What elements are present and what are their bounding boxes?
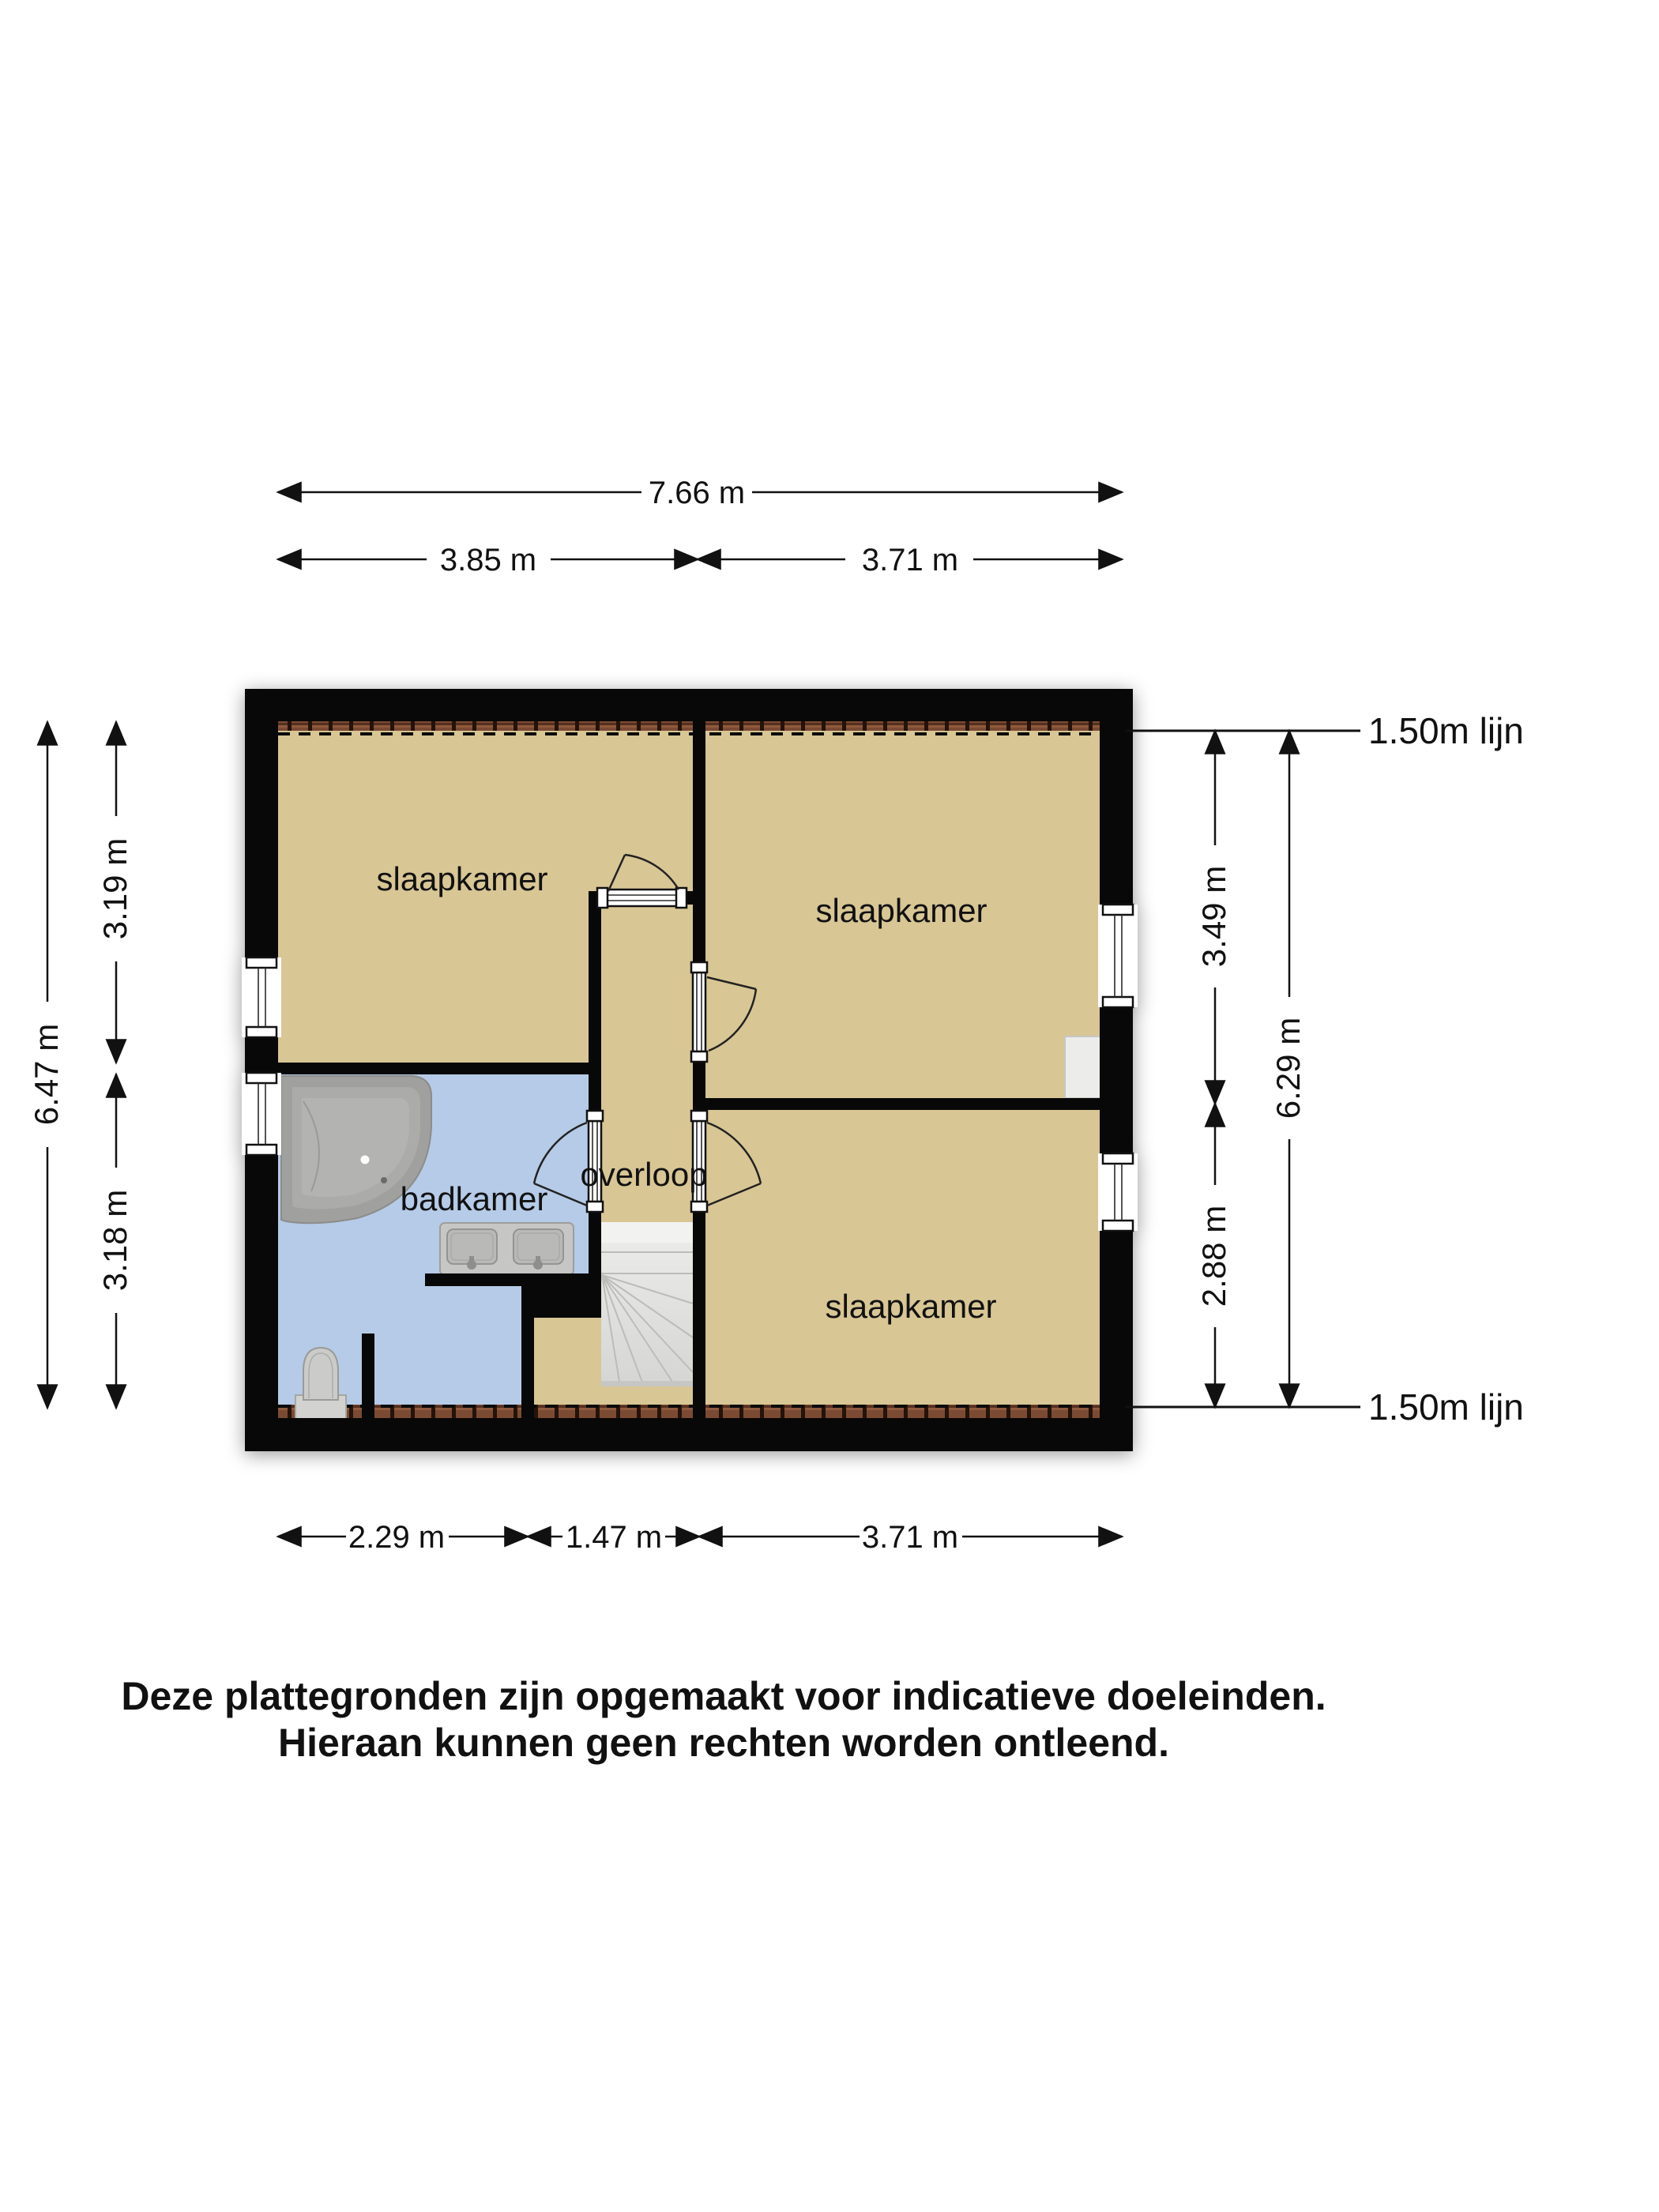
room-label-bedroom-bottom-right: slaapkamer <box>825 1288 996 1325</box>
dim-label-bottom-stairs-width: 1.47 m <box>566 1520 662 1555</box>
window-icon-left-bedroom <box>242 957 281 1037</box>
disclaimer-line-2: Hieraan kunnen geen rechten worden ontle… <box>278 1721 1169 1765</box>
disclaimer-line-1: Deze plattegronden zijn opgemaakt voor i… <box>121 1674 1326 1718</box>
roof-height-label-top: 1.50m lijn <box>1368 710 1524 751</box>
window-icon-right-bedroom-bottom <box>1098 1153 1138 1231</box>
room-label-landing: overloop <box>580 1156 707 1193</box>
floor-plan: slaapkamer slaapkamer slaapkamer badkame… <box>242 689 1138 1451</box>
room-label-bedroom-top-left: slaapkamer <box>376 860 547 897</box>
wall-niche <box>1065 1036 1101 1098</box>
dim-label-right-bottom-height: 2.88 m <box>1195 1206 1232 1307</box>
staircase-icon <box>601 1222 693 1386</box>
dim-label-bottom-bathroom-width: 2.29 m <box>348 1520 445 1555</box>
dim-label-right-total-height: 6.29 m <box>1270 1018 1307 1119</box>
window-icon-left-bathroom <box>242 1073 281 1155</box>
floor-plan-canvas: slaapkamer slaapkamer slaapkamer badkame… <box>0 0 1659 2212</box>
dim-label-left-total-height: 6.47 m <box>28 1024 65 1125</box>
brick-facade-top <box>278 721 1101 731</box>
roof-height-label-bottom: 1.50m lijn <box>1368 1386 1524 1428</box>
window-icon-right-bedroom-top <box>1098 905 1138 1007</box>
dim-label-total-width: 7.66 m <box>649 476 745 510</box>
floorplan-page: slaapkamer slaapkamer slaapkamer badkame… <box>0 0 1659 2212</box>
dim-label-top-right-width: 3.71 m <box>862 543 958 577</box>
dim-label-left-bottom-height: 3.18 m <box>96 1190 134 1291</box>
room-label-bathroom: badkamer <box>401 1180 548 1217</box>
double-sink-icon <box>440 1223 574 1275</box>
room-label-bedroom-top-right: slaapkamer <box>815 892 987 929</box>
dim-label-bottom-right-width: 3.71 m <box>862 1520 958 1555</box>
dim-label-top-left-width: 3.85 m <box>440 543 536 577</box>
dim-label-left-top-height: 3.19 m <box>96 838 134 939</box>
dim-label-right-top-height: 3.49 m <box>1195 866 1232 967</box>
